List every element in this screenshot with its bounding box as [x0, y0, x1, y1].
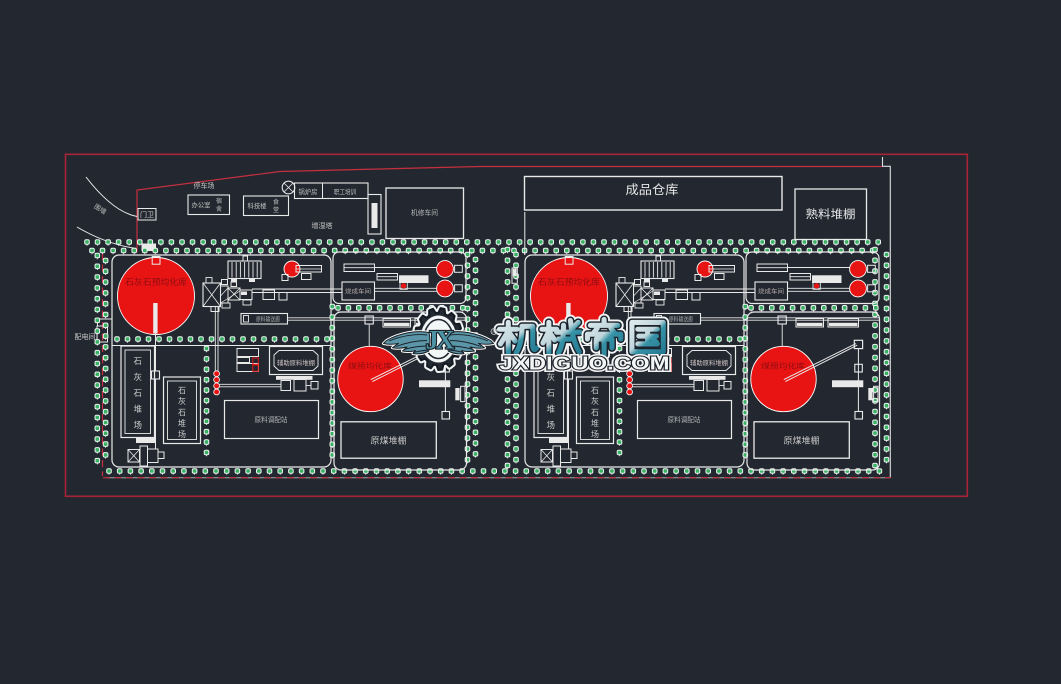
svg-text:停车场: 停车场 [194, 181, 215, 190]
svg-text:R: R [492, 330, 495, 335]
svg-text:舍: 舍 [216, 205, 222, 213]
svg-text:原料输送廊: 原料输送廊 [256, 316, 280, 324]
svg-text:灰: 灰 [133, 372, 142, 382]
svg-text:原料输送廊: 原料输送廊 [669, 316, 693, 324]
svg-text:煤预均化库: 煤预均化库 [348, 361, 393, 371]
svg-text:灰: 灰 [546, 372, 555, 382]
svg-text:石: 石 [591, 386, 599, 395]
svg-text:JX: JX [426, 326, 455, 355]
svg-text:成品仓库: 成品仓库 [626, 182, 679, 197]
svg-text:堆: 堆 [178, 418, 186, 428]
svg-text:熟料堆棚: 熟料堆棚 [806, 207, 856, 221]
svg-text:原煤堆棚: 原煤堆棚 [784, 436, 820, 446]
svg-text:石: 石 [178, 386, 186, 395]
svg-text:原料调配站: 原料调配站 [255, 415, 288, 424]
svg-text:JXDIGUO.COM: JXDIGUO.COM [500, 354, 670, 374]
svg-text:场: 场 [178, 430, 186, 439]
svg-text:烧成车间: 烧成车间 [758, 288, 784, 296]
svg-text:辅助原料堆棚: 辅助原料堆棚 [277, 358, 315, 367]
svg-text:场: 场 [591, 430, 599, 439]
svg-text:原料调配站: 原料调配站 [668, 415, 701, 424]
svg-text:石灰石预均化库: 石灰石预均化库 [125, 277, 188, 287]
svg-text:石: 石 [591, 408, 599, 417]
svg-text:配电间: 配电间 [75, 332, 96, 341]
svg-text:堆: 堆 [546, 404, 555, 414]
svg-text:宿: 宿 [216, 197, 222, 205]
svg-text:石灰石预均化库: 石灰石预均化库 [538, 277, 601, 287]
svg-text:辅助原料堆棚: 辅助原料堆棚 [690, 358, 728, 367]
svg-text:灰: 灰 [591, 396, 599, 406]
svg-text:烧成车间: 烧成车间 [345, 288, 371, 296]
svg-text:锅炉房: 锅炉房 [299, 187, 318, 196]
svg-text:石: 石 [546, 388, 555, 398]
svg-text:石: 石 [178, 408, 186, 417]
svg-text:场: 场 [133, 420, 142, 430]
svg-text:科技楼: 科技楼 [248, 201, 267, 210]
svg-text:煤预均化库: 煤预均化库 [761, 361, 806, 371]
svg-text:石: 石 [133, 388, 142, 398]
svg-text:职工培训: 职工培训 [334, 187, 356, 196]
svg-text:食: 食 [273, 198, 279, 206]
svg-text:机修车间: 机修车间 [411, 208, 438, 217]
svg-text:堆: 堆 [133, 404, 142, 414]
svg-text:场: 场 [546, 420, 555, 430]
svg-text:堆: 堆 [591, 418, 599, 428]
svg-text:办公室: 办公室 [192, 200, 211, 209]
svg-text:堂: 堂 [273, 206, 279, 214]
svg-text:门卫: 门卫 [140, 210, 154, 219]
svg-text:增湿塔: 增湿塔 [312, 221, 333, 230]
svg-text:灰: 灰 [178, 396, 186, 406]
svg-text:石: 石 [133, 356, 142, 366]
svg-text:原煤堆棚: 原煤堆棚 [371, 436, 407, 446]
